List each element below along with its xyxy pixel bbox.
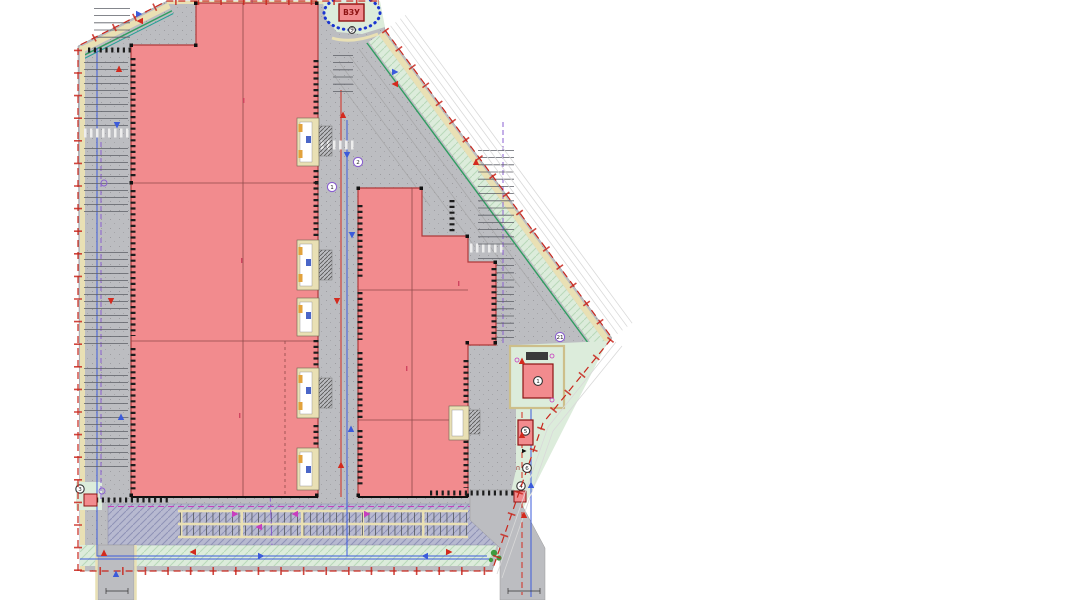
svg-text:3: 3 — [78, 487, 82, 493]
svg-text:2: 2 — [356, 160, 360, 166]
svg-text:21: 21 — [556, 335, 564, 341]
substation-enclosure: 1 — [510, 346, 564, 408]
svg-text:6: 6 — [525, 466, 529, 472]
substation-marker: 1 — [534, 377, 543, 386]
site-plan-viewport: ВЗУ 9 1 5 4 — [0, 0, 1072, 600]
bottom-parking-band — [108, 504, 500, 545]
road-marker-b: 2 — [353, 157, 362, 166]
landscape-marker: 6 — [523, 464, 532, 473]
site-plan-canvas: ВЗУ 9 1 5 4 — [0, 0, 1072, 600]
svg-text:1: 1 — [536, 379, 540, 385]
vzu-label: ВЗУ — [343, 8, 360, 17]
road-marker-a: 1 — [327, 182, 336, 191]
svg-text:9: 9 — [350, 28, 354, 34]
dock-pod — [297, 448, 319, 490]
equipment-block — [526, 352, 548, 360]
path-point-marker: 21 — [555, 332, 564, 341]
svg-text:1: 1 — [330, 185, 334, 191]
dimension-marks — [106, 588, 540, 594]
warehouse-building-1 — [131, 3, 318, 497]
dock-pod — [297, 298, 319, 336]
vzu-note-marker: 9 — [349, 27, 356, 34]
svg-text:5: 5 — [524, 429, 528, 435]
corner-unit-marker: 3 — [76, 485, 84, 493]
landscape-prefix-label: п — [516, 465, 520, 472]
